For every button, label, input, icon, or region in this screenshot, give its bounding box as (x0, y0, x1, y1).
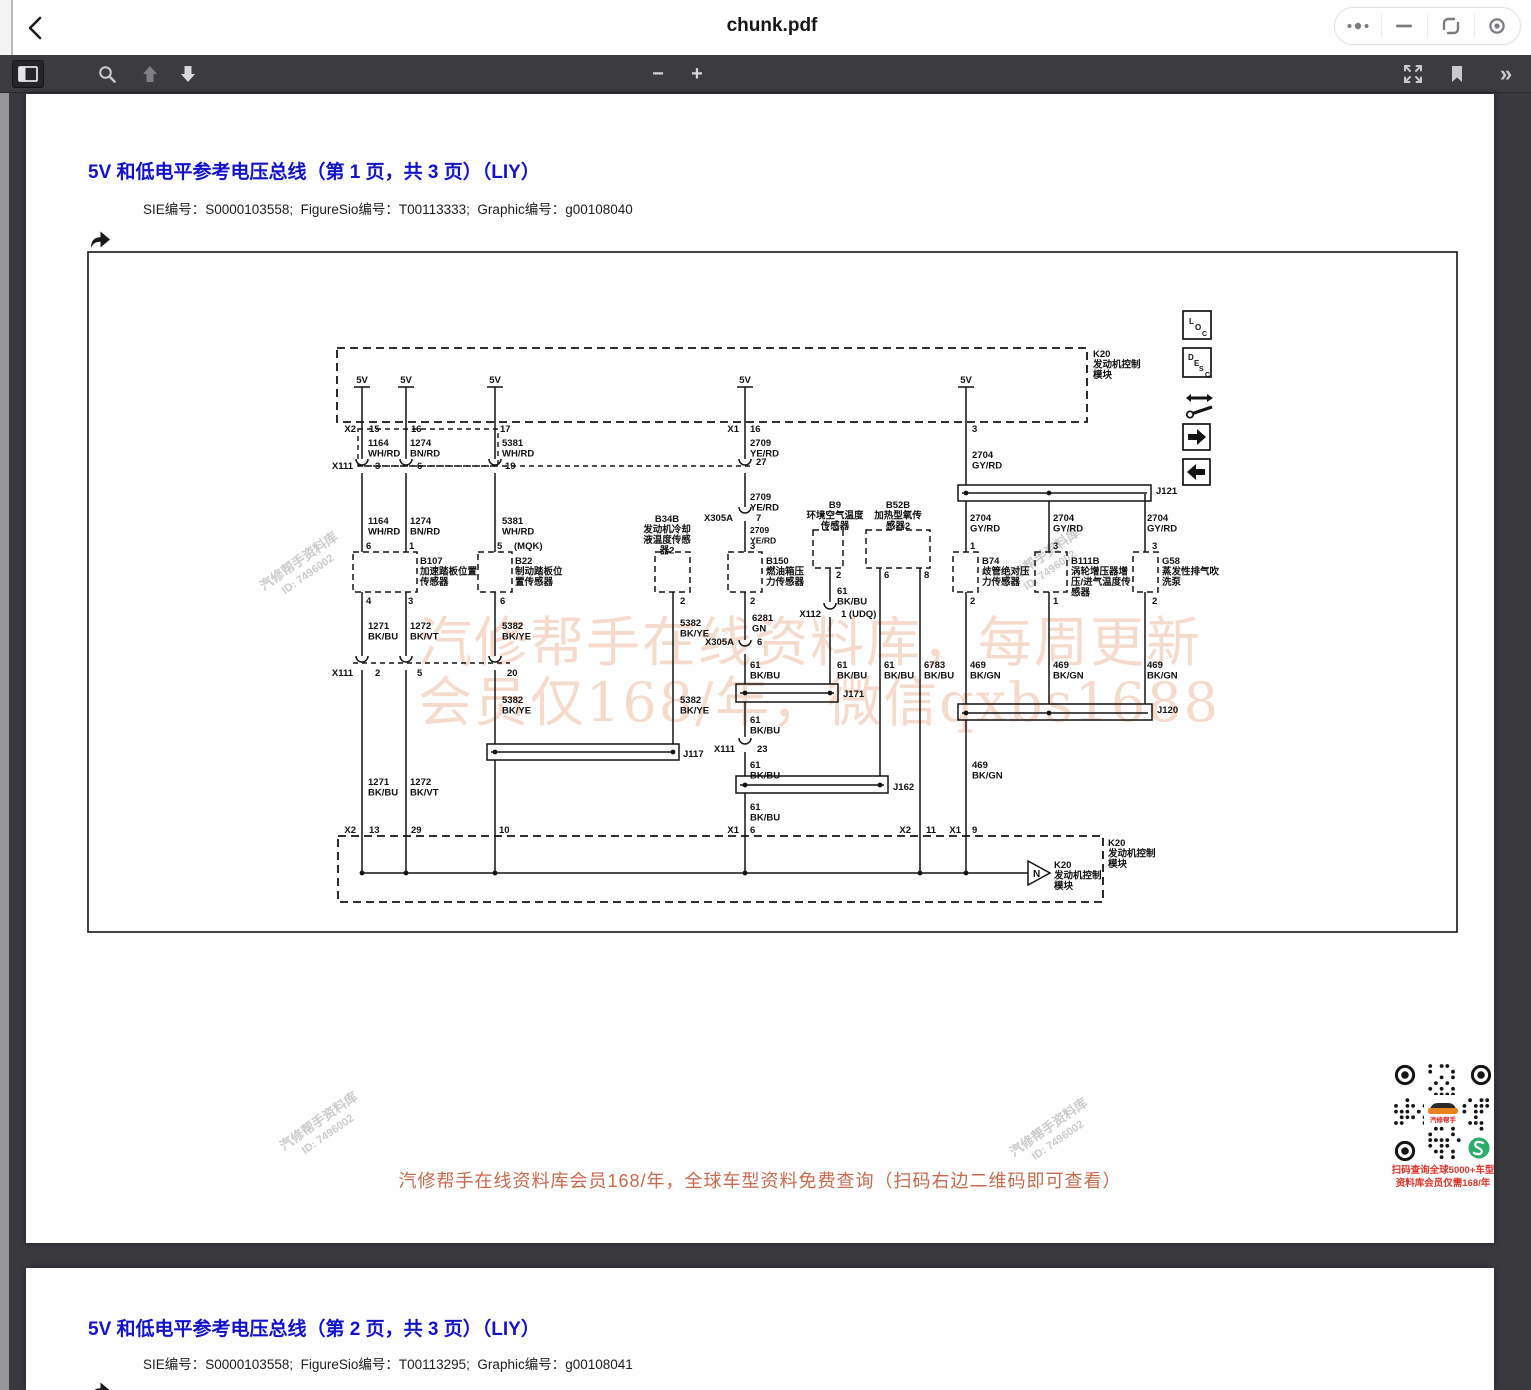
toggle-sidebar-button[interactable] (12, 60, 44, 88)
target-button[interactable] (1475, 8, 1521, 44)
pdf-viewer-window: chunk.pdf (0, 0, 1531, 1390)
sidebar-icon (18, 66, 38, 82)
double-chevron-icon: » (1500, 63, 1512, 85)
zoom-in-button[interactable]: + (681, 58, 713, 90)
previous-page-button[interactable] (134, 58, 166, 90)
target-icon (1487, 16, 1507, 36)
arrow-down-icon (179, 65, 197, 83)
watermark-line2: 会员仅168/年，微信qxbs1688 (418, 658, 1220, 737)
zoom-out-button[interactable]: − (642, 58, 674, 90)
pdf-toolbar: / 13 − + 自动缩放 » (0, 55, 1531, 93)
page1-heading: 5V 和低电平参考电压总线（第 1 页，共 3 页）（LIY） (88, 157, 540, 184)
restore-icon (1440, 15, 1462, 37)
background-window-edge (0, 55, 9, 1390)
bookmark-button[interactable] (1441, 58, 1473, 90)
plus-icon: + (691, 64, 703, 84)
search-button[interactable] (91, 58, 123, 90)
titlebar: chunk.pdf (13, 0, 1531, 55)
arrow-up-icon (141, 65, 159, 83)
toolbar-more-button[interactable]: » (1490, 58, 1522, 90)
share-arrow-icon[interactable] (88, 227, 112, 251)
promo-banner-text: 汽修帮手在线资料库会员168/年，全球车型资料免费查询（扫码右边二维码即可查看） (26, 1167, 1494, 1193)
page2-meta: SIE编号：S0000103558; FigureSio编号：T00113295… (143, 1353, 633, 1373)
page2-heading: 5V 和低电平参考电压总线（第 2 页，共 3 页）（LIY） (88, 1314, 540, 1341)
qr-captions: 扫码查询全球5000+车型 资料库会员仅需168/年 (1390, 1165, 1496, 1190)
window-controls (1334, 7, 1521, 45)
page1-meta: SIE编号：S0000103558; FigureSio编号：T00113333… (143, 198, 633, 218)
qr-caption-line1: 扫码查询全球5000+车型 (1390, 1165, 1496, 1178)
presentation-mode-button[interactable] (1397, 58, 1429, 90)
more-options-button[interactable] (1335, 8, 1381, 44)
share-arrow-icon-partial (88, 1378, 112, 1390)
restore-button[interactable] (1428, 8, 1474, 44)
qr-code: 汽修帮手 (1392, 1062, 1494, 1164)
fullscreen-icon (1403, 64, 1423, 84)
qr-logo-text: 汽修帮手 (1430, 1115, 1457, 1124)
document-title: chunk.pdf (13, 15, 1531, 37)
background-window-edge-top (0, 0, 13, 55)
minimize-icon (1394, 23, 1414, 29)
next-page-button[interactable] (172, 58, 204, 90)
ellipsis-icon (1345, 20, 1371, 32)
qr-caption-line2: 资料库会员仅需168/年 (1390, 1178, 1496, 1191)
minus-icon: − (652, 64, 664, 84)
bookmark-icon (1449, 65, 1465, 83)
search-icon (97, 64, 117, 84)
minimize-button[interactable] (1382, 8, 1428, 44)
